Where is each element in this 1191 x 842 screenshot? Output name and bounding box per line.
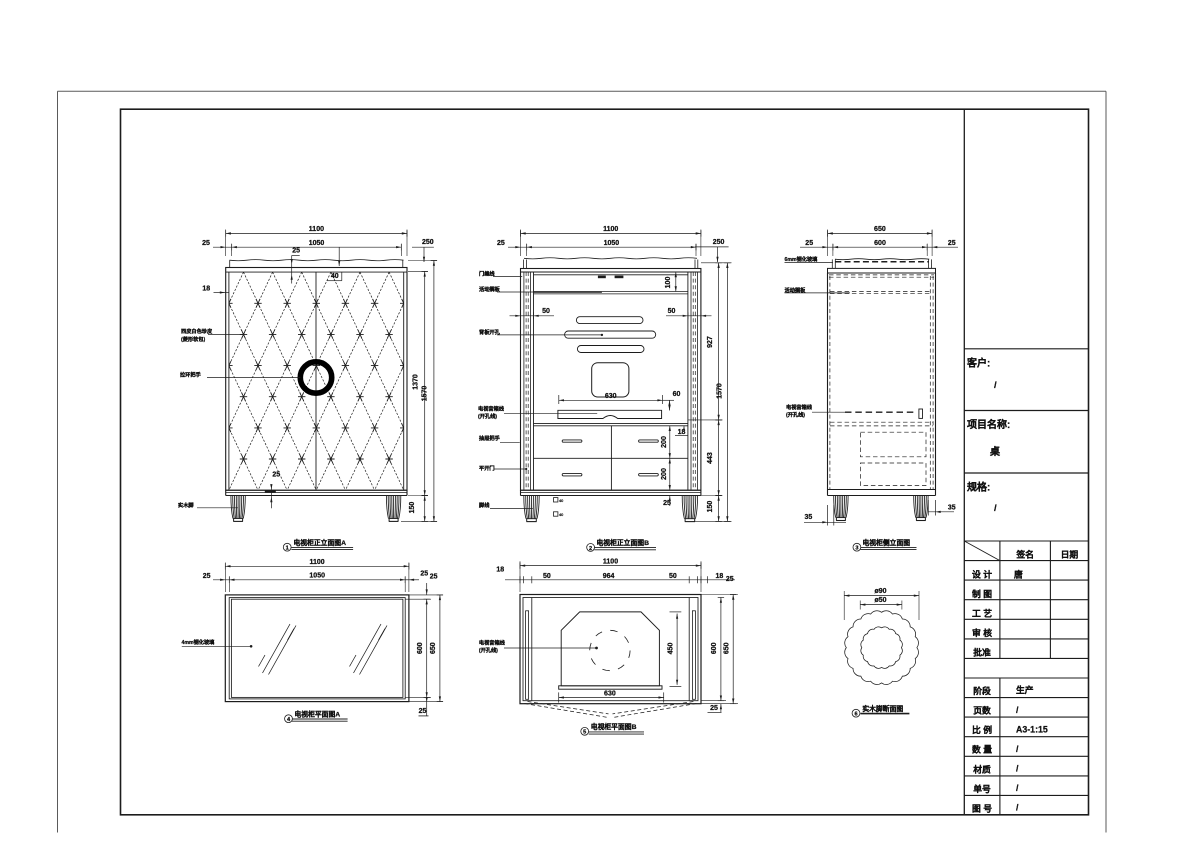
svg-text:630: 630 bbox=[604, 690, 616, 697]
svg-text:抽屉把手: 抽屉把手 bbox=[479, 434, 501, 442]
svg-text:25: 25 bbox=[948, 240, 956, 247]
svg-text:签名: 签名 bbox=[1015, 549, 1034, 560]
svg-text:/: / bbox=[994, 380, 997, 391]
svg-text:443: 443 bbox=[707, 452, 714, 464]
svg-text:18: 18 bbox=[496, 567, 504, 574]
svg-text:600: 600 bbox=[874, 240, 886, 247]
svg-text:电视音箱线: 电视音箱线 bbox=[786, 403, 813, 411]
svg-text:40: 40 bbox=[331, 273, 339, 280]
svg-text:200: 200 bbox=[661, 468, 668, 480]
svg-text:电视音箱线: 电视音箱线 bbox=[479, 639, 506, 647]
svg-text:单号: 单号 bbox=[973, 783, 991, 794]
svg-text:50: 50 bbox=[542, 308, 550, 315]
svg-text:唐: 唐 bbox=[1014, 568, 1023, 579]
svg-text:1570: 1570 bbox=[717, 383, 724, 399]
svg-text:25: 25 bbox=[726, 576, 734, 583]
svg-text:50: 50 bbox=[668, 308, 676, 315]
svg-text:25: 25 bbox=[202, 240, 210, 247]
svg-text:200: 200 bbox=[661, 436, 668, 448]
svg-text:设 计: 设 计 bbox=[972, 568, 992, 579]
svg-text:4mm钢化玻璃: 4mm钢化玻璃 bbox=[182, 638, 216, 646]
svg-text:(开孔线): (开孔线) bbox=[786, 411, 805, 419]
svg-text:25: 25 bbox=[420, 570, 428, 577]
svg-text:18: 18 bbox=[716, 573, 724, 580]
svg-text:页数: 页数 bbox=[973, 705, 991, 716]
svg-text:电视柜平面图B: 电视柜平面图B bbox=[591, 722, 637, 731]
svg-text:25: 25 bbox=[292, 248, 300, 255]
svg-text:脚线: 脚线 bbox=[479, 501, 490, 509]
svg-text:项目名称:: 项目名称: bbox=[967, 418, 1010, 431]
svg-text:数 量: 数 量 bbox=[971, 744, 992, 755]
svg-text:平开门: 平开门 bbox=[479, 464, 495, 472]
svg-text:2: 2 bbox=[589, 546, 592, 552]
svg-text:25: 25 bbox=[710, 705, 718, 712]
svg-text:/: / bbox=[994, 503, 997, 514]
svg-text:工 艺: 工 艺 bbox=[972, 607, 992, 618]
svg-text:比 例: 比 例 bbox=[972, 724, 992, 735]
svg-text:25: 25 bbox=[272, 471, 280, 478]
svg-text:实木脚: 实木脚 bbox=[178, 501, 194, 509]
svg-text:1370: 1370 bbox=[413, 374, 420, 390]
svg-text:5: 5 bbox=[583, 730, 586, 736]
svg-text:3: 3 bbox=[855, 546, 858, 552]
svg-text:40: 40 bbox=[559, 499, 563, 503]
svg-text:50: 50 bbox=[543, 573, 551, 580]
svg-text:客户:: 客户: bbox=[966, 357, 990, 370]
svg-text:35: 35 bbox=[948, 504, 956, 511]
svg-text:250: 250 bbox=[713, 239, 725, 246]
svg-text:桌: 桌 bbox=[989, 445, 1000, 458]
svg-text:250: 250 bbox=[422, 239, 434, 246]
svg-text:规格:: 规格: bbox=[967, 481, 990, 494]
svg-text:门缝线: 门缝线 bbox=[479, 269, 495, 277]
svg-text:电视柜正立面图A: 电视柜正立面图A bbox=[294, 538, 347, 547]
svg-text:1100: 1100 bbox=[309, 226, 324, 233]
svg-text:630: 630 bbox=[605, 393, 617, 400]
svg-text:450: 450 bbox=[667, 643, 674, 655]
svg-text:25: 25 bbox=[497, 240, 505, 247]
svg-text:审 核: 审 核 bbox=[972, 627, 992, 638]
svg-text:图 号: 图 号 bbox=[972, 803, 992, 813]
svg-text:日期: 日期 bbox=[1061, 549, 1079, 560]
svg-text:(开孔线): (开孔线) bbox=[478, 412, 497, 420]
svg-text:A3-1:15: A3-1:15 bbox=[1016, 724, 1048, 734]
svg-text:ø90: ø90 bbox=[874, 588, 886, 595]
svg-text:927: 927 bbox=[707, 336, 714, 348]
svg-text:阶段: 阶段 bbox=[973, 685, 991, 696]
svg-text:1100: 1100 bbox=[603, 558, 618, 565]
svg-text:批准: 批准 bbox=[973, 647, 991, 658]
svg-text:电视柜平面图A: 电视柜平面图A bbox=[295, 710, 341, 719]
svg-text:25: 25 bbox=[203, 573, 211, 580]
svg-text:600: 600 bbox=[417, 642, 424, 654]
svg-text:1050: 1050 bbox=[604, 240, 620, 247]
svg-text:1100: 1100 bbox=[310, 559, 325, 566]
svg-text:964: 964 bbox=[603, 573, 615, 580]
svg-text:40: 40 bbox=[559, 513, 563, 517]
svg-text:60: 60 bbox=[673, 391, 681, 398]
svg-text:1050: 1050 bbox=[309, 573, 325, 580]
svg-text:50: 50 bbox=[669, 573, 677, 580]
svg-text:600: 600 bbox=[711, 642, 718, 654]
svg-text:拉环把手: 拉环把手 bbox=[180, 371, 202, 379]
svg-text:生产: 生产 bbox=[1016, 684, 1034, 695]
svg-text:(菱形软包): (菱形软包) bbox=[181, 335, 205, 343]
svg-text:25: 25 bbox=[419, 708, 427, 715]
svg-text:材质: 材质 bbox=[973, 763, 991, 774]
svg-text:(开孔线): (开孔线) bbox=[479, 646, 498, 654]
svg-text:25: 25 bbox=[805, 240, 813, 247]
svg-text:电视柜侧立面图: 电视柜侧立面图 bbox=[863, 538, 911, 547]
svg-text:650: 650 bbox=[874, 226, 886, 233]
svg-text:150: 150 bbox=[707, 501, 714, 513]
svg-text:实木脚断面图: 实木脚断面图 bbox=[862, 704, 903, 713]
svg-text:1100: 1100 bbox=[603, 226, 618, 233]
svg-text:35: 35 bbox=[805, 514, 813, 521]
svg-text:制 图: 制 图 bbox=[972, 588, 992, 599]
svg-text:18: 18 bbox=[202, 286, 210, 293]
svg-text:ø50: ø50 bbox=[874, 597, 886, 604]
svg-text:西皮白色珍皮: 西皮白色珍皮 bbox=[181, 327, 213, 335]
svg-text:650: 650 bbox=[724, 642, 731, 654]
svg-text:6mm钢化玻璃: 6mm钢化玻璃 bbox=[785, 255, 819, 263]
svg-text:1050: 1050 bbox=[309, 240, 325, 247]
svg-text:电视音箱线: 电视音箱线 bbox=[478, 405, 505, 413]
svg-text:25: 25 bbox=[430, 574, 438, 581]
svg-text:电视柜正立面图B: 电视柜正立面图B bbox=[597, 538, 650, 547]
svg-text:6: 6 bbox=[854, 712, 857, 718]
svg-text:150: 150 bbox=[409, 502, 416, 514]
svg-text:650: 650 bbox=[430, 642, 437, 654]
svg-text:100: 100 bbox=[665, 277, 672, 289]
svg-text:1570: 1570 bbox=[421, 386, 428, 402]
svg-text:1: 1 bbox=[286, 546, 289, 552]
